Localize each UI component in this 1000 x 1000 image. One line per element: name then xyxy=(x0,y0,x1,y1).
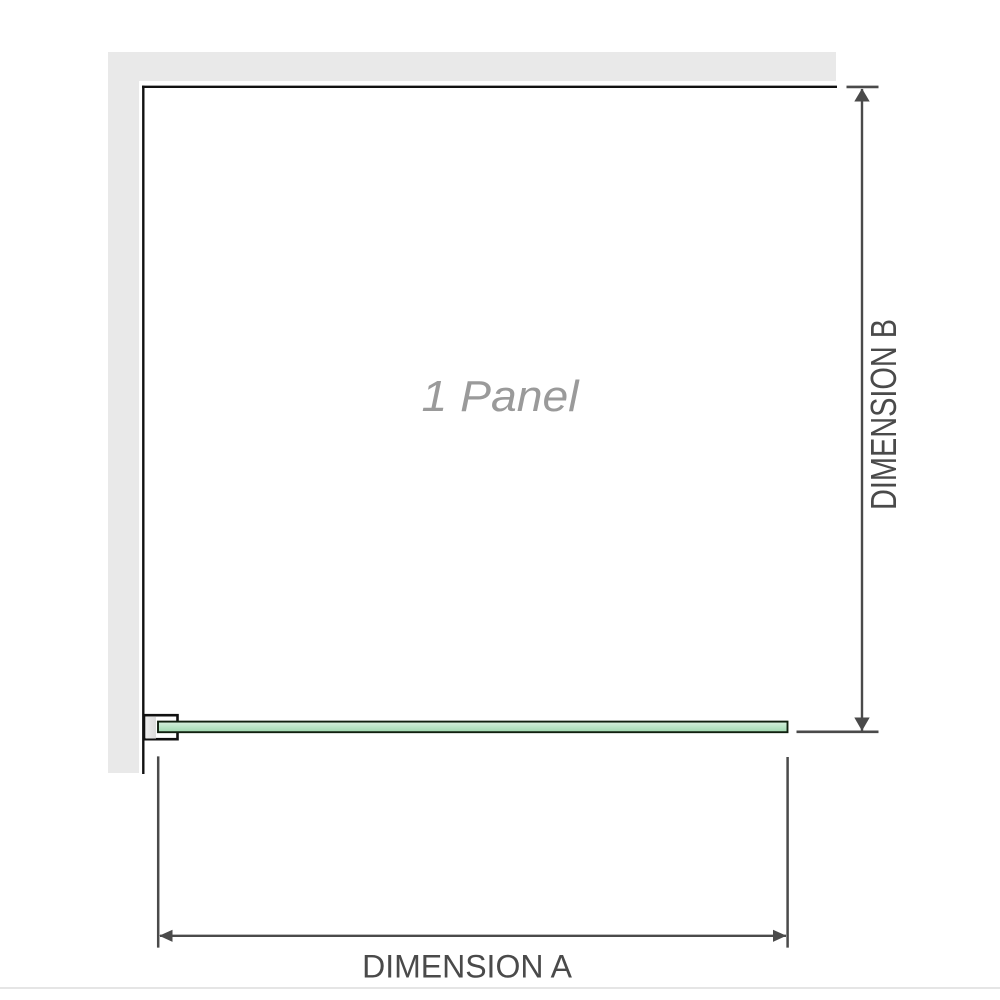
svg-text:DIMENSION B: DIMENSION B xyxy=(863,319,904,510)
svg-text:DIMENSION A: DIMENSION A xyxy=(362,949,572,985)
svg-text:1 Panel: 1 Panel xyxy=(422,372,580,421)
